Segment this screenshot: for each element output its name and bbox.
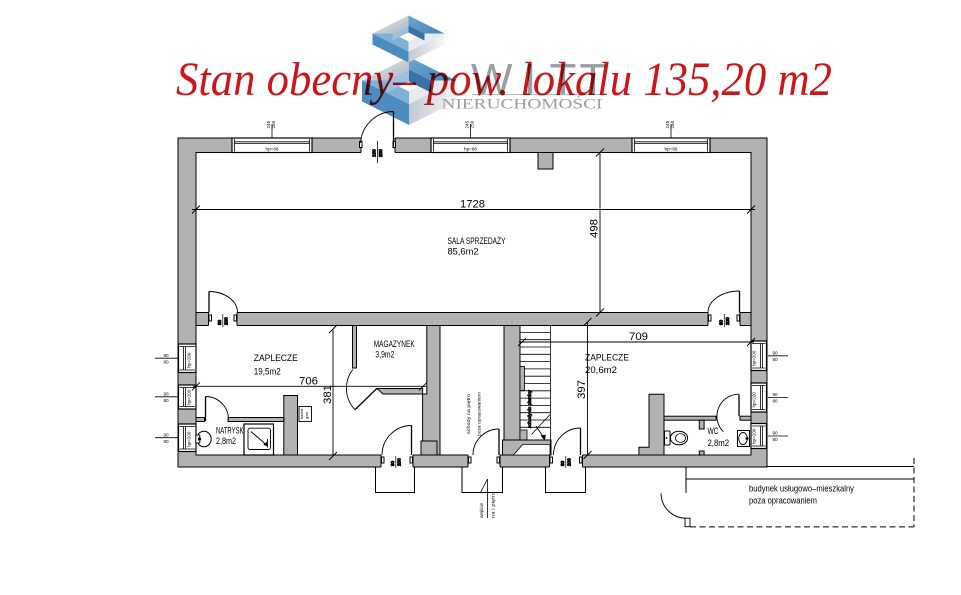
svg-text:200: 200 (567, 458, 572, 466)
svg-text:hp=86: hp=86 (665, 147, 678, 152)
svg-text:80: 80 (772, 437, 778, 442)
svg-text:1728: 1728 (460, 199, 485, 211)
svg-text:MAGAZYNEK: MAGAZYNEK (374, 339, 415, 349)
svg-text:397: 397 (576, 380, 588, 399)
svg-text:498: 498 (589, 219, 601, 238)
svg-text:200: 200 (397, 458, 402, 466)
svg-text:ZAPLECZE: ZAPLECZE (254, 353, 298, 363)
svg-text:90: 90 (772, 350, 778, 355)
svg-text:250: 250 (470, 120, 475, 128)
svg-text:20,6m2: 20,6m2 (585, 365, 617, 375)
svg-text:schody do piwnicy: schody do piwnicy (527, 389, 532, 428)
svg-text:80: 80 (163, 398, 169, 403)
svg-text:hp=200: hp=200 (187, 431, 192, 447)
svg-text:250: 250 (271, 120, 276, 128)
svg-text:250: 250 (670, 120, 675, 128)
svg-text:80: 80 (560, 460, 565, 466)
svg-text:hp=200: hp=200 (187, 389, 192, 405)
svg-text:709: 709 (629, 331, 648, 343)
svg-text:80: 80 (163, 439, 169, 444)
svg-text:90: 90 (719, 319, 724, 325)
svg-text:schody na piętro: schody na piętro (466, 393, 471, 434)
svg-text:hp=200: hp=200 (187, 352, 192, 368)
svg-text:3,9m2: 3,9m2 (375, 350, 394, 360)
svg-text:poza opracowaniem: poza opracowaniem (477, 392, 482, 436)
svg-text:90: 90 (772, 392, 778, 397)
svg-text:ZAPLECZE: ZAPLECZE (585, 353, 629, 363)
svg-text:200: 200 (378, 149, 383, 157)
svg-text:SALA SPRZEDAŻY: SALA SPRZEDAŻY (448, 236, 506, 246)
svg-text:wejście: wejście (479, 502, 484, 518)
svg-text:200: 200 (224, 317, 229, 325)
svg-text:80: 80 (772, 399, 778, 404)
svg-text:85,6m2: 85,6m2 (448, 247, 479, 257)
svg-text:NATRYSK: NATRYSK (216, 426, 244, 436)
svg-text:90: 90 (163, 391, 169, 396)
svg-text:hp=200: hp=200 (752, 392, 757, 408)
svg-text:WC: WC (708, 426, 719, 436)
svg-text:budynek usługowo–mieszkalny: budynek usługowo–mieszkalny (749, 484, 854, 494)
svg-text:na I piętro: na I piętro (491, 491, 496, 518)
svg-text:poza opracowaniem: poza opracowaniem (749, 496, 817, 506)
svg-text:80: 80 (163, 359, 169, 364)
svg-text:100: 100 (372, 149, 377, 157)
svg-text:2,8m2: 2,8m2 (708, 438, 730, 448)
svg-text:706: 706 (299, 375, 318, 387)
svg-text:hp=86: hp=86 (464, 147, 477, 152)
svg-text:90: 90 (163, 432, 169, 437)
svg-text:90: 90 (390, 460, 395, 466)
svg-text:381: 381 (322, 385, 334, 404)
svg-text:hp=86: hp=86 (266, 147, 279, 152)
svg-text:hp=200: hp=200 (752, 350, 757, 366)
svg-text:gaz.: gaz. (304, 411, 309, 419)
svg-text:90: 90 (163, 353, 169, 358)
svg-text:19,5m2: 19,5m2 (254, 367, 281, 377)
svg-text:90: 90 (772, 431, 778, 436)
svg-text:200: 200 (725, 317, 730, 325)
svg-text:80: 80 (772, 357, 778, 362)
svg-text:90: 90 (217, 319, 222, 325)
svg-text:Stan obecny– pow. lokalu 135,2: Stan obecny– pow. lokalu 135,20 m2 (176, 53, 832, 106)
svg-text:2,8m2: 2,8m2 (216, 436, 236, 446)
svg-text:hp=200: hp=200 (752, 428, 757, 444)
